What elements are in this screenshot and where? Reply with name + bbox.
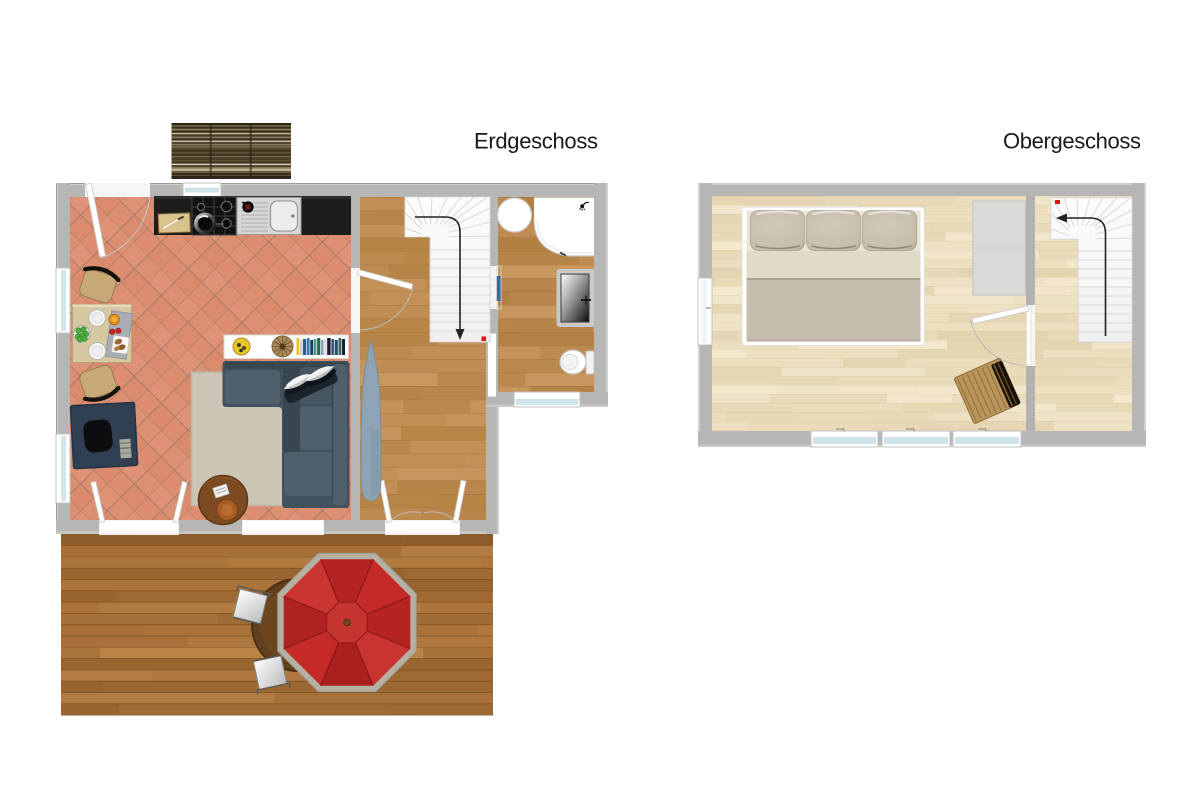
svg-text:Erdgeschoss: Erdgeschoss: [474, 129, 598, 154]
svg-text:Obergeschoss: Obergeschoss: [1003, 129, 1141, 154]
